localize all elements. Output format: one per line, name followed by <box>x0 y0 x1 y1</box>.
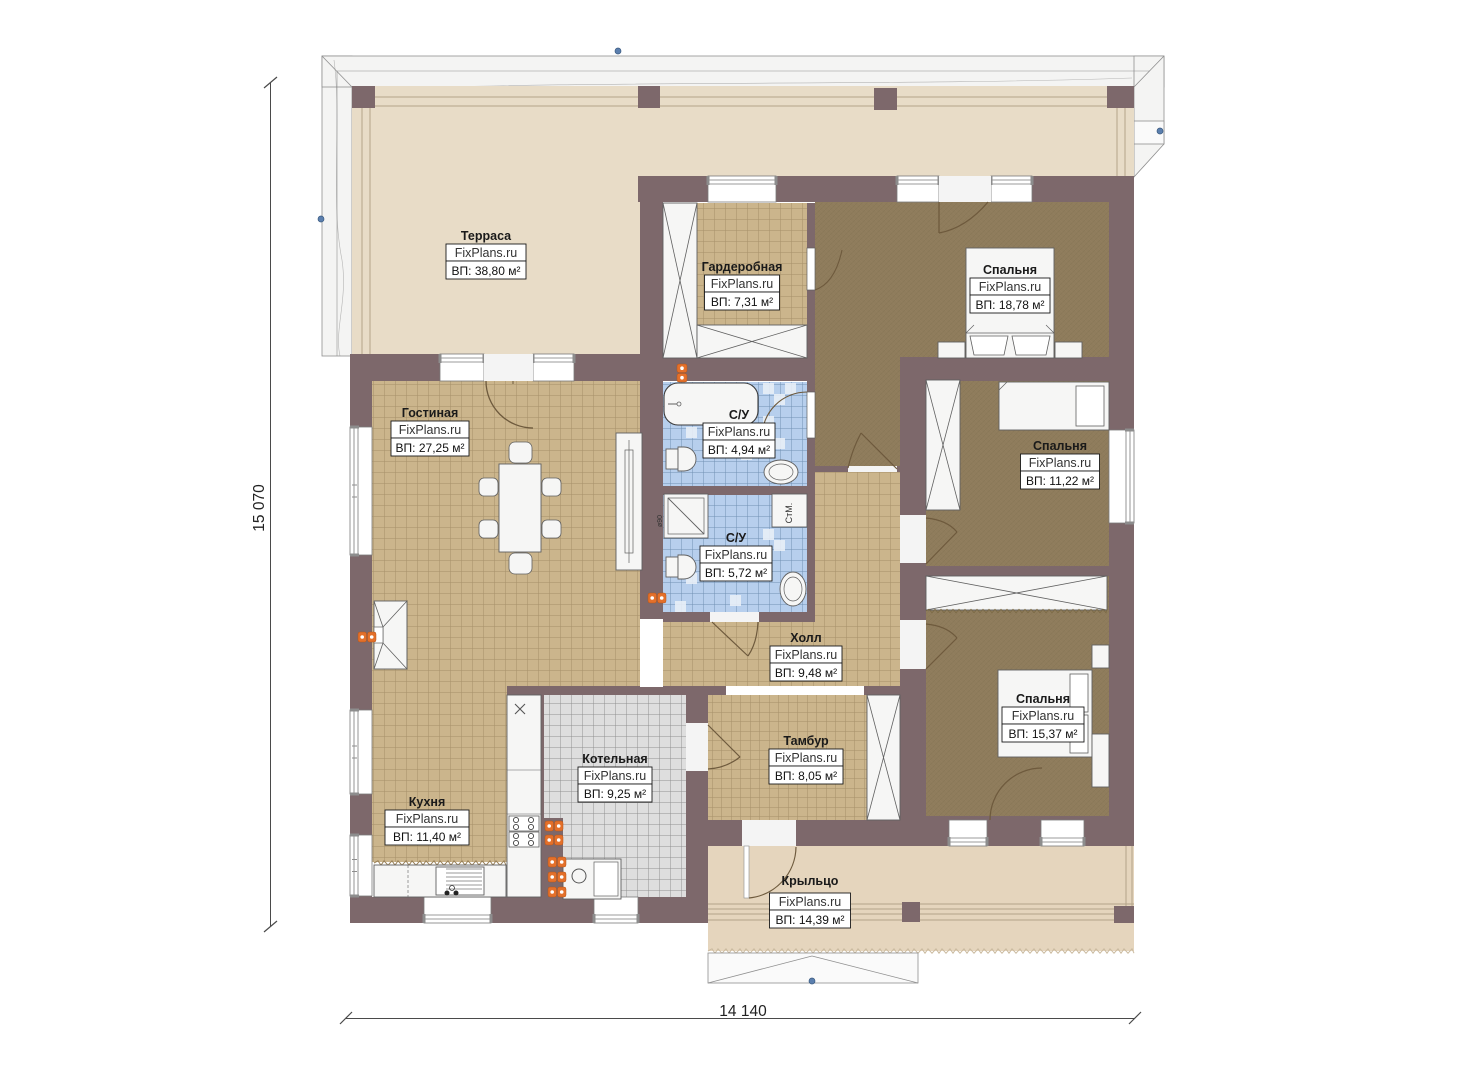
svg-text:15 070: 15 070 <box>251 484 268 532</box>
svg-text:FixPlans.ru: FixPlans.ru <box>775 751 838 765</box>
svg-text:СтМ.: СтМ. <box>784 503 794 524</box>
svg-text:Крыльцо: Крыльцо <box>782 874 839 888</box>
svg-text:Спальня: Спальня <box>1016 692 1070 706</box>
svg-text:ВП: 7,31 м²: ВП: 7,31 м² <box>711 295 773 309</box>
svg-text:FixPlans.ru: FixPlans.ru <box>705 548 768 562</box>
svg-text:Терраса: Терраса <box>461 229 512 243</box>
svg-text:С/У: С/У <box>726 531 747 545</box>
svg-text:FixPlans.ru: FixPlans.ru <box>775 648 838 662</box>
svg-text:FixPlans.ru: FixPlans.ru <box>584 769 647 783</box>
svg-text:ВП: 9,48 м²: ВП: 9,48 м² <box>775 666 837 680</box>
svg-text:ВП: 8,05 м²: ВП: 8,05 м² <box>775 769 837 783</box>
svg-text:ø90: ø90 <box>657 515 664 527</box>
svg-text:ВП: 11,40 м²: ВП: 11,40 м² <box>393 830 461 844</box>
svg-text:FixPlans.ru: FixPlans.ru <box>979 280 1042 294</box>
svg-text:ВП: 38,80 м²: ВП: 38,80 м² <box>452 264 521 278</box>
svg-text:FixPlans.ru: FixPlans.ru <box>399 423 462 437</box>
svg-text:FixPlans.ru: FixPlans.ru <box>711 277 774 291</box>
svg-text:ВП: 11,22 м²: ВП: 11,22 м² <box>1026 474 1094 488</box>
svg-text:ВП: 15,37 м²: ВП: 15,37 м² <box>1009 727 1078 741</box>
svg-text:14 140: 14 140 <box>719 1003 767 1020</box>
svg-text:ВП: 27,25 м²: ВП: 27,25 м² <box>396 441 465 455</box>
svg-text:Тамбур: Тамбур <box>783 734 829 748</box>
svg-text:Кухня: Кухня <box>409 795 446 809</box>
svg-text:Гардеробная: Гардеробная <box>702 260 783 274</box>
svg-text:Спальня: Спальня <box>983 263 1037 277</box>
svg-text:FixPlans.ru: FixPlans.ru <box>455 246 518 260</box>
svg-text:ВП: 18,78 м²: ВП: 18,78 м² <box>976 298 1045 312</box>
svg-text:Спальня: Спальня <box>1033 439 1087 453</box>
svg-text:ВП: 4,94 м²: ВП: 4,94 м² <box>708 443 770 457</box>
svg-text:Котельная: Котельная <box>582 752 647 766</box>
svg-text:Холл: Холл <box>790 631 821 645</box>
svg-text:FixPlans.ru: FixPlans.ru <box>708 425 771 439</box>
svg-text:Гостиная: Гостиная <box>402 406 459 420</box>
svg-text:FixPlans.ru: FixPlans.ru <box>396 812 459 826</box>
svg-text:FixPlans.ru: FixPlans.ru <box>779 895 842 909</box>
svg-text:С/У: С/У <box>729 408 750 422</box>
svg-text:ВП: 5,72 м²: ВП: 5,72 м² <box>705 566 767 580</box>
svg-text:FixPlans.ru: FixPlans.ru <box>1029 456 1092 470</box>
svg-text:ВП: 14,39 м²: ВП: 14,39 м² <box>776 913 845 927</box>
svg-text:FixPlans.ru: FixPlans.ru <box>1012 709 1075 723</box>
svg-text:ВП: 9,25 м²: ВП: 9,25 м² <box>584 787 646 801</box>
